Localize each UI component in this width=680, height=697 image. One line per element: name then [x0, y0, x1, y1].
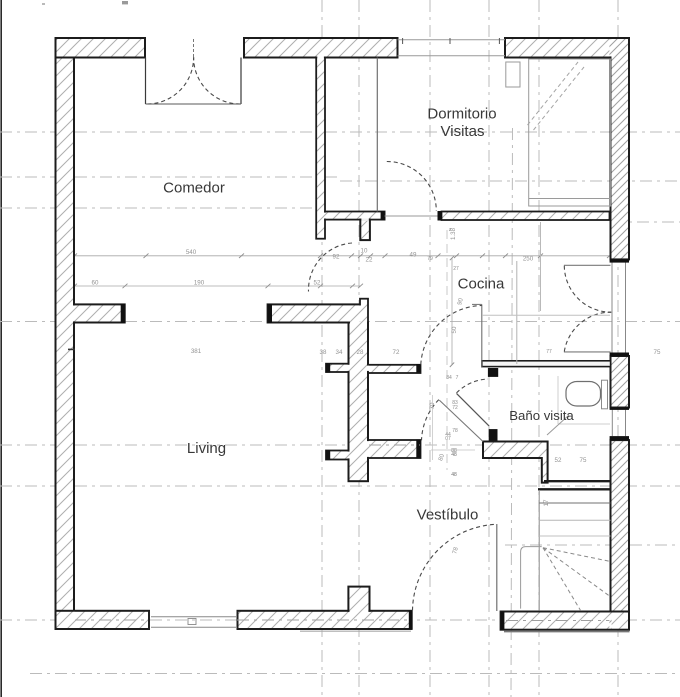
svg-text:60: 60	[92, 280, 99, 287]
svg-text:92: 92	[333, 254, 340, 261]
svg-text:75: 75	[580, 457, 587, 464]
svg-text:250: 250	[523, 256, 534, 263]
svg-text:Cocina: Cocina	[458, 276, 505, 293]
svg-text:10: 10	[361, 248, 368, 255]
svg-text:Visitas: Visitas	[441, 123, 485, 140]
svg-text:78: 78	[452, 428, 458, 434]
svg-text:22: 22	[366, 257, 373, 264]
svg-text:Baño visita: Baño visita	[509, 408, 574, 423]
svg-text:381: 381	[191, 348, 202, 355]
svg-text:17: 17	[543, 499, 550, 506]
svg-text:07: 07	[445, 436, 451, 442]
svg-text:52: 52	[314, 280, 321, 287]
svg-text:540: 540	[186, 249, 197, 256]
svg-text:72: 72	[452, 405, 458, 411]
svg-text:7: 7	[456, 375, 459, 381]
svg-text:52: 52	[555, 457, 562, 464]
svg-text:84: 84	[446, 375, 452, 381]
svg-text:34: 34	[336, 349, 343, 356]
svg-text:72: 72	[393, 349, 400, 356]
svg-text:27: 27	[453, 266, 459, 272]
svg-text:50: 50	[451, 326, 458, 333]
svg-text:Living: Living	[187, 440, 226, 457]
svg-text:79: 79	[427, 256, 433, 262]
svg-text:28: 28	[357, 349, 364, 356]
svg-text:38: 38	[320, 349, 327, 356]
svg-text:77: 77	[546, 349, 552, 355]
svg-text:75: 75	[654, 349, 661, 356]
svg-text:48: 48	[451, 452, 457, 458]
svg-text:48: 48	[451, 472, 457, 478]
svg-text:Dormitorio: Dormitorio	[427, 106, 496, 123]
svg-text:Comedor: Comedor	[163, 180, 225, 197]
svg-text:Vestíbulo: Vestíbulo	[417, 507, 479, 524]
svg-text:49: 49	[410, 252, 417, 259]
svg-text:190: 190	[194, 280, 205, 287]
